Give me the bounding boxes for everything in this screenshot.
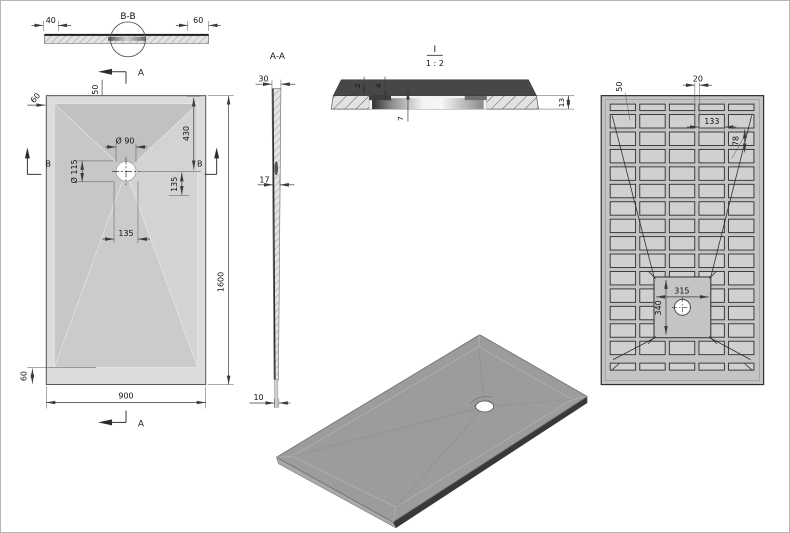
plan-dim-900: 900 [118, 392, 133, 401]
shower-tray-engineering-drawing: B-B 40 60 A 50 [0, 0, 790, 533]
plan-dim-diam90: Ø 90 [116, 135, 135, 145]
rib-pocket [610, 104, 635, 110]
rib-pocket [729, 271, 754, 284]
detail-dim-2: 2 [353, 83, 362, 88]
plan-dim-50: 50 [91, 85, 100, 95]
detail-dim-13: 13 [557, 98, 566, 108]
rib-pocket [610, 289, 635, 302]
rib-pocket [669, 149, 694, 162]
rib-pocket [640, 132, 665, 145]
rib-pocket [729, 324, 754, 337]
rib-pocket [669, 363, 694, 370]
rib-pocket [699, 363, 724, 370]
cut-a-bottom-label: A [138, 419, 145, 429]
plan-view: 60 Ø 90 Ø 115 430 135 135 1600 [19, 91, 233, 429]
plan-dim-135-h: 135 [118, 229, 133, 238]
rib-pocket [610, 363, 635, 370]
detail-i-scale: 1 : 2 [426, 59, 444, 68]
rib-pocket [640, 115, 665, 128]
aa-dim-17: 17 [259, 175, 269, 184]
rib-pocket [699, 219, 724, 232]
rib-pocket [610, 132, 635, 145]
rib-pocket [729, 363, 754, 370]
rib-pocket [610, 306, 635, 319]
bottom-dim-78: 78 [732, 136, 741, 146]
rib-pocket [610, 254, 635, 267]
rib-pocket [640, 219, 665, 232]
detail-i-number: I [434, 45, 437, 55]
rib-pocket [729, 289, 754, 302]
section-bb-view: B-B 40 60 [31, 12, 220, 57]
b-right-label: B [197, 159, 202, 168]
rib-pocket [669, 132, 694, 145]
rib-pocket [640, 149, 665, 162]
detail-top-surface [333, 80, 536, 96]
rib-pocket [729, 219, 754, 232]
detail-dim-4: 4 [374, 83, 383, 88]
bottom-dim-50: 50 [615, 82, 624, 92]
b-left-label: B [46, 159, 51, 168]
rib-pocket [729, 167, 754, 180]
bottom-dim-340: 340 [654, 300, 663, 315]
cut-arrow-a-bottom: A [98, 410, 145, 429]
detail-dim-7: 7 [396, 116, 405, 121]
rib-pocket [729, 254, 754, 267]
rib-pocket [669, 167, 694, 180]
isometric-view [276, 335, 587, 528]
plan-dim-430: 430 [182, 126, 191, 141]
detail-step-left [369, 96, 391, 100]
rib-pocket [640, 167, 665, 180]
detail-step-right [465, 96, 487, 100]
bb-drain-recess [108, 37, 146, 41]
rib-pocket [669, 341, 694, 354]
rib-pocket [729, 237, 754, 250]
rib-pocket [729, 306, 754, 319]
plan-dim-135-v: 135 [170, 177, 179, 192]
rib-pocket [610, 167, 635, 180]
bottom-view: 50 20 133 78 315 340 [601, 75, 763, 385]
rib-pocket [699, 254, 724, 267]
plan-dim-diam115: Ø 115 [69, 159, 79, 183]
plan-dim-1600: 1600 [217, 272, 226, 292]
rib-pocket [610, 341, 635, 354]
drain-hole-3d [476, 401, 494, 412]
rib-pocket [669, 219, 694, 232]
rib-pocket [610, 237, 635, 250]
rib-pocket [640, 184, 665, 197]
plan-dim-60-top: 60 [29, 91, 42, 105]
rib-pocket [699, 149, 724, 162]
bb-dim-40: 40 [46, 16, 56, 25]
rib-pocket [729, 202, 754, 215]
rib-pocket [699, 167, 724, 180]
bottom-dim-315: 315 [674, 286, 689, 295]
rib-pocket [699, 202, 724, 215]
rib-pocket [729, 104, 754, 110]
rib-pocket [610, 202, 635, 215]
rib-pocket [699, 104, 724, 110]
detail-i-view: I 1 : 2 2 4 7 13 [331, 45, 574, 122]
plan-dim-60-bottom: 60 [19, 371, 28, 381]
technical-drawing-page: B-B 40 60 A 50 [0, 0, 790, 533]
rib-pocket [699, 132, 724, 145]
rib-pocket [640, 104, 665, 110]
rib-pocket [669, 237, 694, 250]
rib-pocket [640, 254, 665, 267]
rib-pocket [729, 341, 754, 354]
section-arrow-icon [25, 147, 30, 158]
rib-pocket [610, 271, 635, 284]
section-arrow-icon [98, 419, 112, 425]
rib-pocket [640, 341, 665, 354]
rib-pocket [669, 254, 694, 267]
aa-dim-10: 10 [253, 393, 263, 402]
section-bb-title: B-B [120, 12, 135, 22]
section-aa-view: A-A 30 17 10 [250, 52, 296, 408]
rib-pocket [640, 202, 665, 215]
aa-dim-30: 30 [258, 75, 268, 84]
bottom-dim-20: 20 [693, 75, 703, 84]
bottom-dim-133: 133 [704, 117, 719, 126]
rib-pocket [640, 237, 665, 250]
rib-pocket [610, 324, 635, 337]
rib-pocket [669, 184, 694, 197]
rib-pocket [640, 363, 665, 370]
section-arrow-icon [214, 147, 219, 158]
rib-pocket [699, 184, 724, 197]
rib-pocket [669, 202, 694, 215]
cut-a-top-label: A [138, 69, 145, 79]
rib-pocket [669, 115, 694, 128]
section-arrow-icon [98, 69, 112, 75]
aa-drain-recess [274, 161, 278, 175]
aa-foot [274, 380, 277, 408]
rib-pocket [669, 104, 694, 110]
rib-pocket [610, 219, 635, 232]
bb-dim-60: 60 [193, 16, 203, 25]
section-aa-title: A-A [270, 52, 286, 62]
